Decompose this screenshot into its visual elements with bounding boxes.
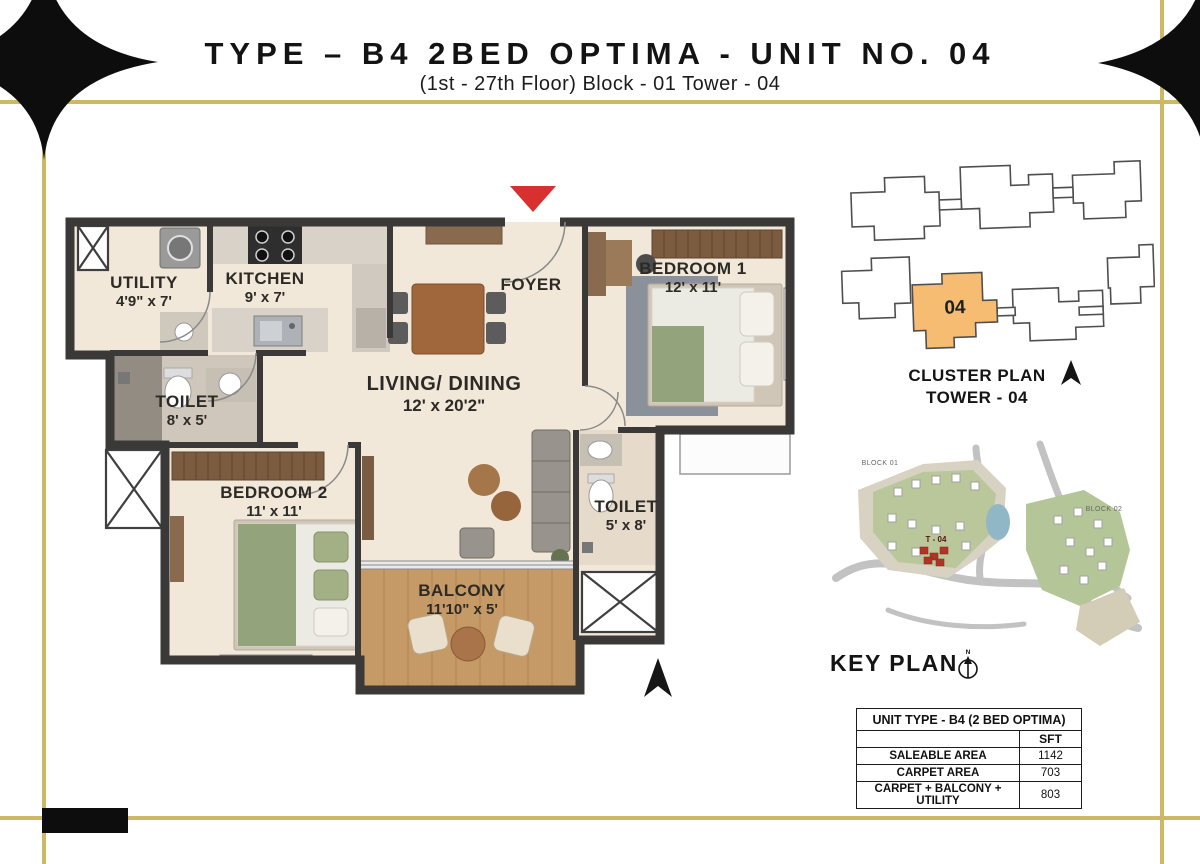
foyer-console	[426, 226, 502, 244]
room-label-bedroom-1: BEDROOM 1	[639, 259, 746, 278]
entry-arrow-icon	[510, 186, 556, 212]
unit-number-label: 04	[944, 297, 966, 319]
room-label-kitchen: KITCHEN	[225, 269, 304, 288]
table-row: UNIT TYPE - B4 (2 BED OPTIMA)	[857, 709, 1082, 731]
room-dims-utility: 4'9" x 7'	[116, 293, 172, 310]
table-row: CARPET + BALCONY + UTILITY 803	[857, 782, 1082, 809]
brochure-page: TYPE – B4 2BED OPTIMA - UNIT NO. 04 (1st…	[0, 0, 1200, 864]
area-table-blank-cell	[857, 731, 1020, 748]
room-dims-toilet-1: 8' x 5'	[167, 412, 208, 429]
block-01-label: BLOCK 01	[862, 460, 899, 467]
plan-north-arrow-icon	[644, 658, 672, 697]
area-table-col-header: SFT	[1020, 731, 1082, 748]
key-plan-map: T - 04 BLOCK 01 BLOCK 02	[828, 430, 1158, 665]
keyplan-pond	[986, 504, 1010, 540]
room-label-toilet-2: TOILET	[594, 497, 657, 516]
exterior-ledge	[680, 434, 790, 474]
compass-icon: N	[953, 648, 983, 682]
room-label-toilet-1: TOILET	[155, 392, 218, 411]
room-dims-balcony: 11'10" x 5'	[426, 601, 498, 618]
area-row-label: CARPET + BALCONY + UTILITY	[857, 782, 1020, 809]
washing-machine-icon	[160, 228, 200, 268]
gold-line-left	[42, 0, 46, 864]
cluster-plan: 04	[835, 150, 1155, 355]
area-table: UNIT TYPE - B4 (2 BED OPTIMA) SFT SALEAB…	[856, 708, 1082, 809]
room-dims-bedroom-1: 12' x 11'	[665, 279, 721, 296]
room-dims-living: 12' x 20'2"	[403, 396, 485, 415]
table-row: CARPET AREA 703	[857, 765, 1082, 782]
floor-plan: UTILITY 4'9" x 7' KITCHEN 9' x 7' FOYER …	[60, 180, 800, 700]
room-label-foyer: FOYER	[500, 275, 561, 294]
area-row-label: SALEABLE AREA	[857, 748, 1020, 765]
room-dims-toilet-2: 5' x 8'	[606, 517, 647, 534]
cluster-buildings: 04	[838, 161, 1155, 352]
table-row: SFT	[857, 731, 1082, 748]
table-row: SALEABLE AREA 1142	[857, 748, 1082, 765]
area-row-value: 1142	[1020, 748, 1082, 765]
room-label-living: LIVING/ DINING	[367, 373, 522, 395]
page-subtitle: (1st - 27th Floor) Block - 01 Tower - 04	[0, 73, 1200, 96]
cluster-plan-title: CLUSTER PLAN	[867, 366, 1087, 386]
area-row-value: 703	[1020, 765, 1082, 782]
cluster-north-arrow-icon	[1058, 358, 1084, 388]
page-title: TYPE – B4 2BED OPTIMA - UNIT NO. 04	[0, 36, 1200, 72]
stove-icon	[248, 226, 302, 264]
area-table-title: UNIT TYPE - B4 (2 BED OPTIMA)	[857, 709, 1082, 731]
area-row-value: 803	[1020, 782, 1082, 809]
key-plan-title: KEY PLAN	[830, 650, 958, 677]
corner-block-decoration	[42, 808, 128, 833]
room-label-utility: UTILITY	[110, 273, 178, 292]
area-row-label: CARPET AREA	[857, 765, 1020, 782]
gold-line-right	[1160, 0, 1164, 864]
compass-north-letter: N	[966, 649, 971, 656]
room-dims-bedroom-2: 11' x 11'	[246, 503, 302, 520]
tower-04-label: T - 04	[926, 535, 947, 544]
utility-sink-icon	[160, 312, 208, 352]
room-label-balcony: BALCONY	[418, 581, 506, 600]
cluster-plan-tower: TOWER - 04	[867, 388, 1087, 408]
gold-line-top	[0, 100, 1200, 104]
kitchen-sink-icon	[254, 316, 302, 346]
room-dims-kitchen: 9' x 7'	[245, 289, 286, 306]
room-label-bedroom-2: BEDROOM 2	[220, 483, 327, 502]
tv-console	[362, 456, 374, 540]
block-02-label: BLOCK 02	[1086, 506, 1123, 513]
gold-line-bottom	[0, 816, 1200, 820]
